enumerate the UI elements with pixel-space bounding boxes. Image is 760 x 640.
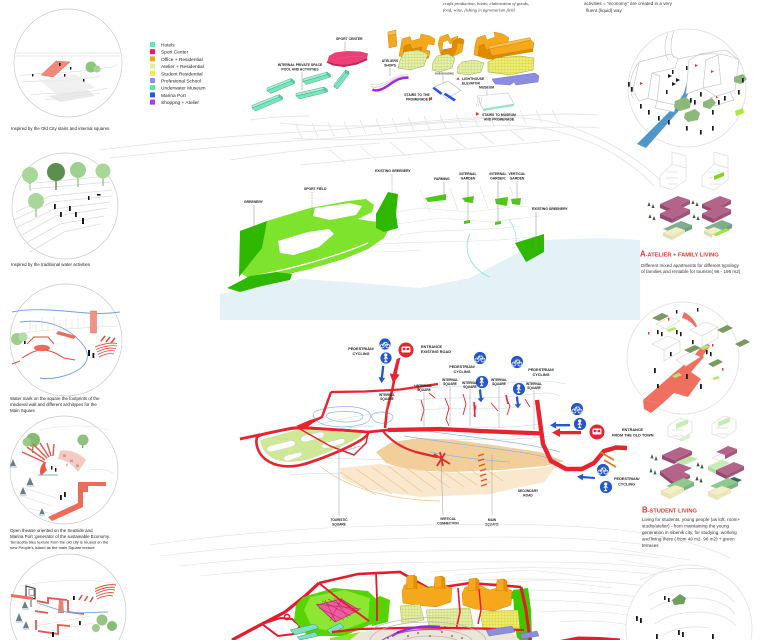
svg-text:STAIRS TO MUSEUM: STAIRS TO MUSEUM: [482, 113, 516, 117]
svg-text:Terracotta tiles texture from: Terracotta tiles texture from the old ci…: [10, 540, 109, 545]
svg-text:GARDEN: GARDEN: [461, 177, 476, 181]
svg-text:HUB BUILDING: HUB BUILDING: [435, 72, 454, 76]
svg-text:SPORT CENTER: SPORT CENTER: [336, 37, 363, 41]
svg-text:Underwater Museum: Underwater Museum: [161, 86, 206, 92]
svg-text:VERTICAL: VERTICAL: [440, 517, 456, 521]
svg-text:SQUARE: SQUARE: [380, 397, 394, 401]
svg-text:SQUARE: SQUARE: [417, 388, 431, 392]
svg-text:SQUARE: SQUARE: [527, 386, 541, 390]
svg-text:INTERNAL: INTERNAL: [459, 172, 476, 176]
svg-text:Marina Port: Marina Port: [161, 93, 186, 99]
svg-text:PEDESTRIAN/: PEDESTRIAN/: [614, 477, 640, 481]
svg-text:B-STUDENT LIVING: B-STUDENT LIVING: [642, 506, 698, 515]
svg-text:Water mark on the square the f: Water mark on the square the footprints …: [10, 396, 100, 401]
svg-text:Shoppng + Atelier: Shoppng + Atelier: [161, 100, 199, 106]
svg-text:ELEVATOR: ELEVATOR: [462, 82, 480, 86]
svg-text:new People's Island as the mai: new People's Island as the main Square t…: [10, 545, 95, 550]
svg-text:VERTICAL: VERTICAL: [509, 172, 526, 176]
svg-text:ATELIERS: ATELIERS: [382, 59, 399, 63]
svg-text:generation in sibenik city, fo: generation in sibenik city, for studying…: [642, 530, 737, 535]
svg-text:Living for students, young peo: Living for students, young people (as lo…: [642, 517, 741, 522]
svg-text:Inspired by the traditional wa: Inspired by the traditional water activi…: [11, 262, 91, 267]
svg-text:GARDEN: GARDEN: [510, 177, 525, 181]
svg-text:CYCLING: CYCLING: [352, 352, 369, 356]
svg-text:crafts production, boats; elab: crafts production, boats; elaboration of…: [443, 1, 529, 7]
svg-text:terraces: terraces: [642, 543, 659, 548]
svg-text:MAIN: MAIN: [488, 518, 497, 522]
svg-text:FARMING: FARMING: [434, 177, 450, 181]
svg-text:PEDESTRIAN/: PEDESTRIAN/: [348, 347, 374, 351]
svg-text:PEDESTRIAN/: PEDESTRIAN/: [449, 365, 475, 369]
svg-text:A-ATELIER + FAMILY LIVING: A-ATELIER + FAMILY LIVING: [640, 250, 719, 259]
svg-text:Atelier + Residential: Atelier + Residential: [161, 64, 204, 70]
svg-text:LIGHTHOUSE: LIGHTHOUSE: [462, 77, 485, 81]
svg-text:medieval wall and different ar: medieval wall and different architypes f…: [10, 402, 97, 407]
svg-text:Main Square: Main Square: [10, 408, 35, 413]
svg-text:CYCLING: CYCLING: [532, 373, 549, 377]
svg-text:studio/atelier) - from maintai: studio/atelier) - from maintaining the y…: [642, 524, 730, 529]
svg-text:CYCLING: CYCLING: [618, 483, 635, 487]
svg-text:AND PROMENADE: AND PROMENADE: [484, 118, 515, 122]
svg-text:EXISTING ROAD: EXISTING ROAD: [421, 350, 451, 354]
svg-text:INTERNAL PRIVATE SPACE: INTERNAL PRIVATE SPACE: [278, 63, 323, 67]
svg-text:SQUARE: SQUARE: [443, 382, 457, 386]
svg-text:and living there ( from 49 m2-: and living there ( from 49 m2- 96 m2) + …: [642, 537, 735, 542]
svg-text:Inspired by the Old City stair: Inspired by the Old City stairs and inte…: [11, 126, 110, 131]
svg-text:ENTRANCE: ENTRANCE: [421, 345, 443, 349]
svg-text:food, wine, fishing in agrotou: food, wine, fishing in agrotourism field: [443, 8, 515, 14]
svg-text:EXISTING GREENERY: EXISTING GREENERY: [532, 207, 568, 211]
svg-text:PEDESTRIAN/: PEDESTRIAN/: [528, 368, 554, 372]
svg-text:STAIRS TO THE: STAIRS TO THE: [404, 93, 430, 97]
svg-text:CYCLING: CYCLING: [453, 370, 470, 374]
svg-text:SQUARE: SQUARE: [463, 385, 477, 389]
svg-text:INTERNAL: INTERNAL: [489, 172, 506, 176]
svg-text://: //: [66, 463, 68, 467]
svg-text:activities = "economy" are cre: activities = "economy" are created in a …: [584, 1, 673, 6]
svg-text:of families and rentable for t: of families and rentable for tourism( 96…: [641, 269, 741, 274]
svg-text:FROM THE OLD TOWN: FROM THE OLD TOWN: [612, 434, 654, 438]
svg-text:SQUARE: SQUARE: [332, 523, 346, 527]
svg-text:TOURISTIC: TOURISTIC: [330, 518, 348, 522]
svg-text:GARDEN:: GARDEN:: [490, 177, 506, 181]
svg-text:Marina Port :generator of the: Marina Port :generator of the sustainabl…: [10, 534, 110, 539]
svg-text:SHOPS: SHOPS: [384, 64, 397, 68]
svg-text:PROMENADE: PROMENADE: [406, 98, 429, 102]
svg-text:SPORT FIELD: SPORT FIELD: [304, 187, 327, 191]
svg-text:///: ///: [70, 459, 73, 463]
svg-text:ENTRANCE: ENTRANCE: [622, 428, 644, 432]
svg-text:Hotels: Hotels: [161, 43, 175, 49]
svg-text:EXISTING GREENERY: EXISTING GREENERY: [375, 169, 411, 173]
svg-text:///: ///: [76, 464, 79, 468]
svg-text:Different mixed apartments for: Different mixed apartments for different…: [641, 263, 740, 268]
svg-text:Open theatre oriented on the: Open theatre oriented on the SeaSide and: [10, 528, 93, 533]
svg-text:SECONDARY: SECONDARY: [518, 489, 539, 493]
svg-text:Office + Residential: Office + Residential: [161, 57, 203, 63]
svg-text:ROAD: ROAD: [523, 494, 533, 498]
svg-text:MUSEUM: MUSEUM: [479, 86, 494, 90]
svg-text:SQUARE: SQUARE: [492, 382, 506, 386]
svg-text:POOL AND ACTIVITIES: POOL AND ACTIVITIES: [281, 68, 319, 72]
svg-text:///: ///: [63, 454, 66, 458]
svg-text:fluent (liquid) way: fluent (liquid) way: [586, 8, 622, 13]
svg-text:GREENERY: GREENERY: [244, 200, 264, 204]
svg-text:Student Residential: Student Residential: [161, 71, 203, 77]
svg-text:Profesional School: Profesional School: [161, 79, 201, 85]
svg-text:Sport Center: Sport Center: [161, 50, 189, 56]
